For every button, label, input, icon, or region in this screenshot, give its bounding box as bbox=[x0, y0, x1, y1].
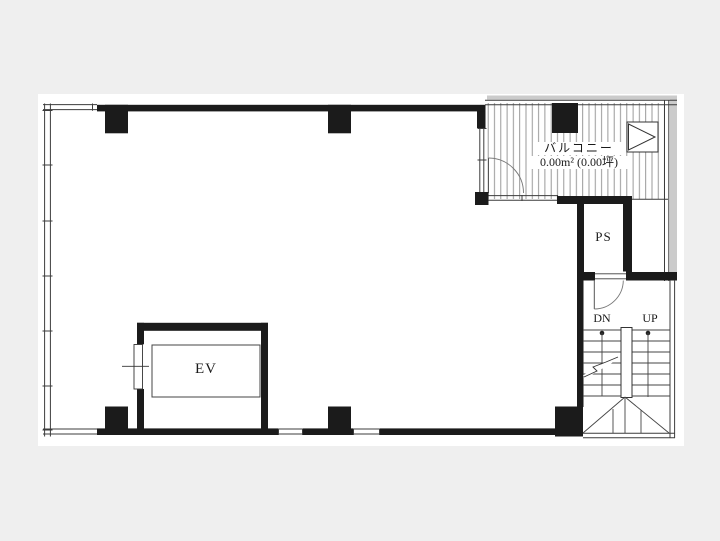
column bbox=[328, 105, 351, 134]
column bbox=[105, 407, 128, 436]
column bbox=[555, 407, 583, 437]
balcony-label: バルコニー bbox=[533, 142, 625, 155]
ps-label: PS bbox=[590, 230, 617, 244]
column bbox=[328, 407, 351, 436]
floorplan-drawing bbox=[0, 0, 720, 541]
escape-hatch-icon bbox=[627, 122, 658, 152]
floorplan-page: バルコニー 0.00m² (0.00坪) PS EV DN UP bbox=[0, 0, 720, 541]
column bbox=[552, 103, 578, 133]
balcony-area-label: 0.00m² (0.00坪) bbox=[527, 156, 631, 169]
balcony-bottom-wall bbox=[557, 196, 632, 204]
stairs-down-label: DN bbox=[589, 312, 615, 325]
stairs-up-label: UP bbox=[637, 312, 663, 325]
ev-label: EV bbox=[189, 362, 223, 378]
column bbox=[105, 105, 128, 134]
stair-divider bbox=[621, 328, 632, 398]
